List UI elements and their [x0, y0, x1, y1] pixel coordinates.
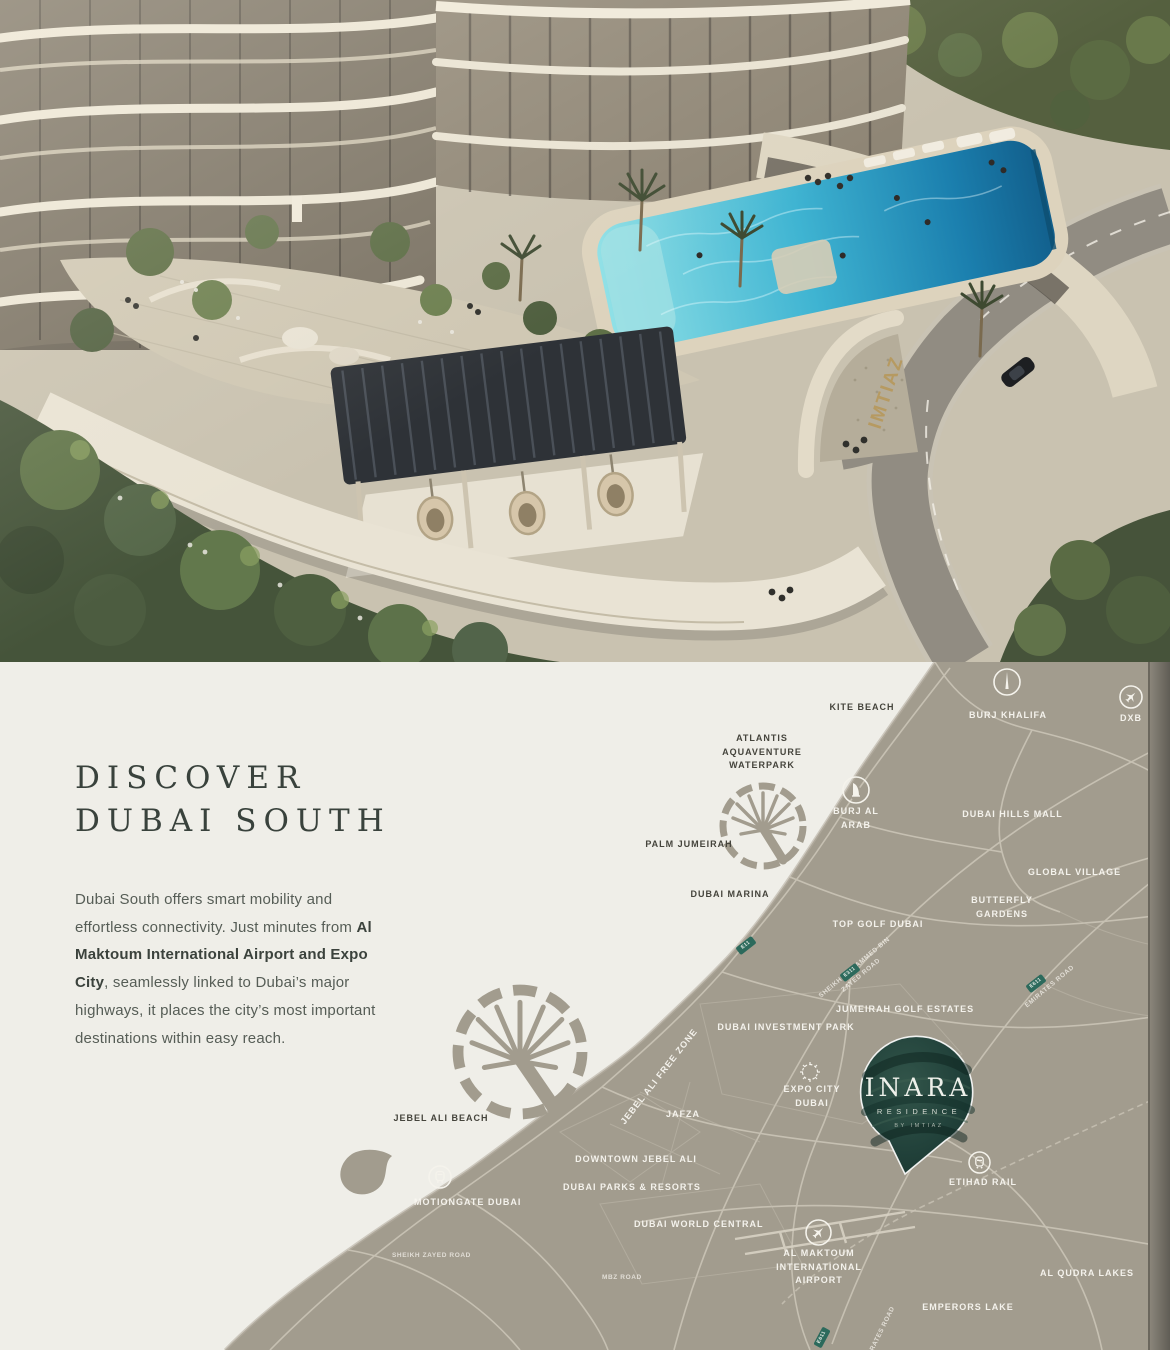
aerial-render-illustration: IMTIAZ	[0, 0, 1170, 662]
map-label-al-maktoum-airport: AL MAKTOUM INTERNATIONAL AIRPORT	[760, 1247, 878, 1288]
map-label-motiongate: MOTIONGATE DUBAI	[414, 1196, 514, 1210]
heading-line-1: DISCOVER	[75, 757, 395, 800]
map-label-burj-khalifa: BURJ KHALIFA	[958, 709, 1058, 723]
map-label-jafza: JAFZA	[658, 1108, 708, 1122]
intro-block: DISCOVER DUBAI SOUTH Dubai South offers …	[75, 757, 395, 1052]
road-label-mbz: MBZ ROAD	[602, 1273, 642, 1283]
expo-city-sunburst-icon	[798, 1060, 822, 1084]
pin-subtitle: RESIDENCE	[877, 1107, 961, 1116]
intro-paragraph-start: Dubai South offers smart mobility and ef…	[75, 891, 356, 936]
palm-jebel-ali-island	[458, 990, 582, 1114]
map-label-dxb: DXB	[1109, 712, 1153, 726]
burj-khalifa-icon	[992, 667, 1022, 697]
inara-residence-pin: INARA RESIDENCE BY IMTIAZ	[845, 1026, 991, 1192]
hero-aerial-render: IMTIAZ	[0, 0, 1170, 662]
map-label-kite-beach: KITE BEACH	[826, 701, 898, 715]
pin-title: INARA	[865, 1073, 972, 1102]
map-label-palm-jumeirah: PALM JUMEIRAH	[645, 838, 733, 852]
intro-paragraph-end: , seamlessly linked to Dubai’s major hig…	[75, 974, 376, 1047]
pin-byline: BY IMTIAZ	[894, 1123, 943, 1129]
map-label-butterfly-gardens: BUTTERFLY GARDENS	[960, 894, 1044, 921]
islet	[340, 1150, 392, 1195]
location-map-section: DISCOVER DUBAI SOUTH Dubai South offers …	[0, 662, 1170, 1350]
map-label-dubai-parks-resorts: DUBAI PARKS & RESORTS	[563, 1181, 688, 1195]
map-label-emperors-lake: EMPERORS LAKE	[918, 1301, 1018, 1315]
burj-al-arab-icon	[841, 775, 871, 805]
dxb-plane-icon	[1118, 684, 1144, 710]
road-label-sheikh-zayed: SHEIKH ZAYED ROAD	[392, 1251, 471, 1261]
palm-jumeirah-island	[723, 786, 803, 866]
map-label-dubai-investment-park: DUBAI INVESTMENT PARK	[712, 1021, 860, 1035]
brochure-page: IMTIAZ	[0, 0, 1170, 1350]
map-label-global-village: GLOBAL VILLAGE	[1022, 866, 1127, 880]
map-label-dubai-marina: DUBAI MARINA	[684, 888, 776, 902]
map-label-jumeirah-golf-estates: JUMEIRAH GOLF ESTATES	[836, 1003, 961, 1017]
al-maktoum-plane-icon	[804, 1218, 833, 1247]
map-label-burj-al-arab: BURJ AL ARAB	[823, 805, 889, 832]
map-label-al-qudra-lakes: AL QUDRA LAKES	[1032, 1267, 1142, 1281]
map-label-dubai-hills-mall: DUBAI HILLS MALL	[955, 808, 1070, 822]
map-label-downtown-jebel-ali: DOWNTOWN JEBEL ALI	[572, 1153, 700, 1167]
map-label-atlantis: ATLANTIS AQUAVENTURE WATERPARK	[710, 732, 814, 773]
map-label-jebel-ali-beach: JEBEL ALI BEACH	[385, 1112, 497, 1126]
map-label-expo-city: EXPO CITY DUBAI	[772, 1083, 852, 1110]
map-label-top-golf: TOP GOLF DUBAI	[826, 918, 930, 932]
heading-line-2: DUBAI SOUTH	[75, 800, 395, 843]
page-edge-shadow	[1148, 662, 1170, 1350]
intro-paragraph: Dubai South offers smart mobility and ef…	[75, 886, 395, 1053]
map-label-dubai-world-central: DUBAI WORLD CENTRAL	[634, 1218, 746, 1232]
motiongate-icon	[427, 1164, 453, 1190]
